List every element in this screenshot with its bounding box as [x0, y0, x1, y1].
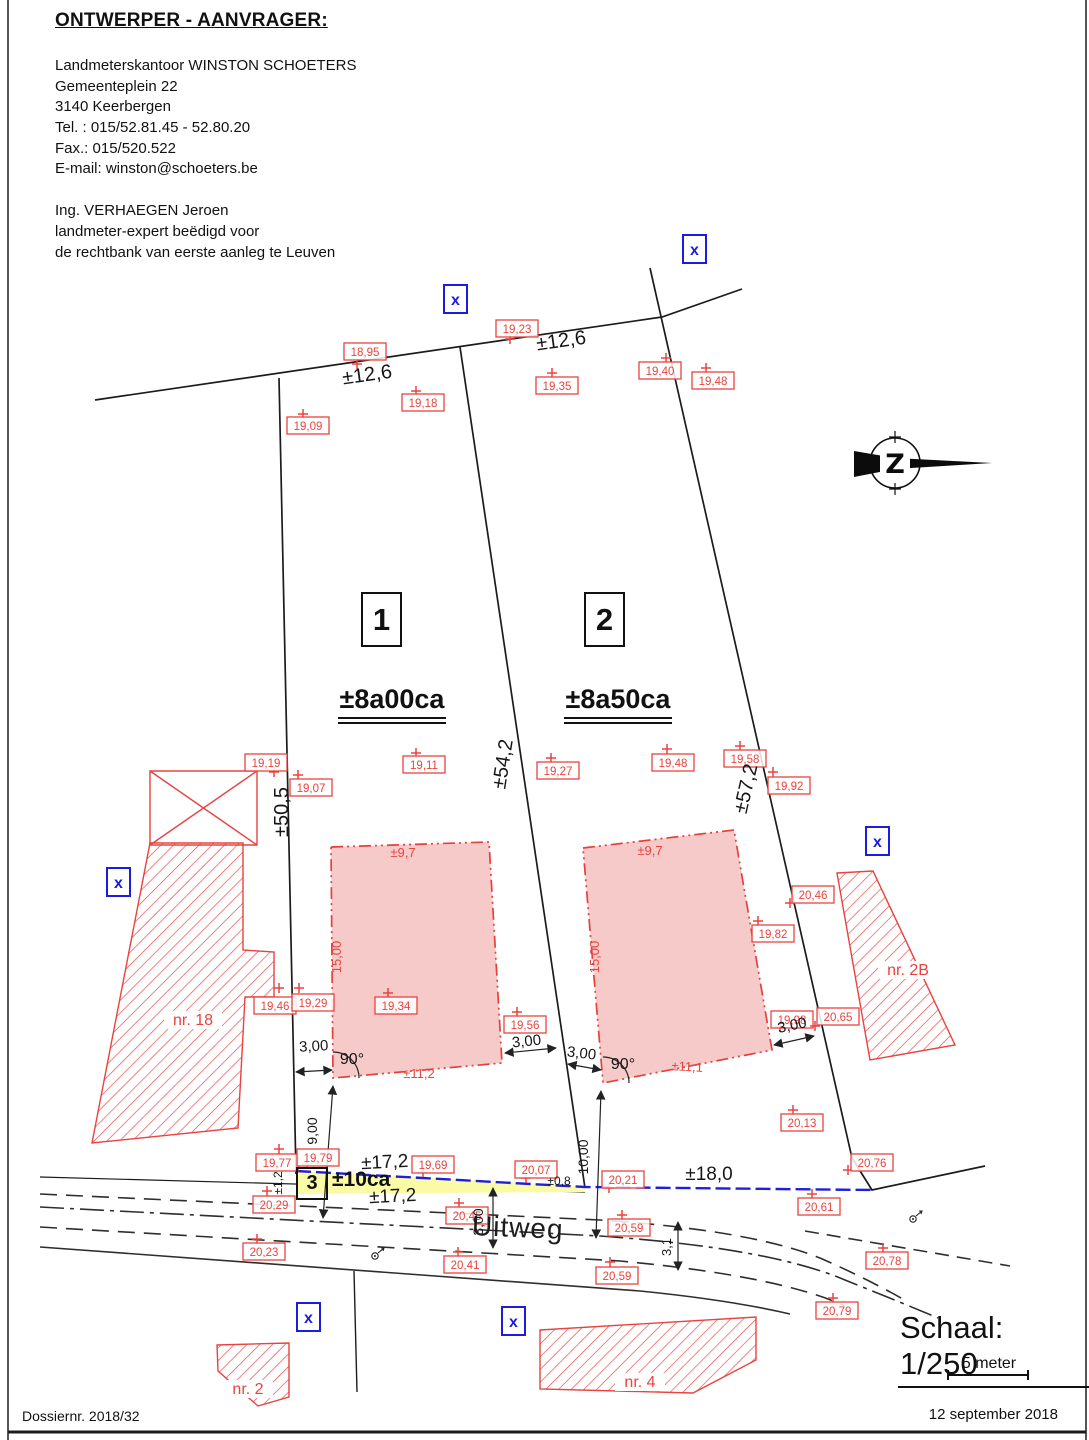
elevation-value: 19,82: [759, 929, 788, 941]
elevation-value: 20,78: [873, 1256, 902, 1268]
x-reference-mark: x: [502, 1307, 525, 1335]
elevation-value: 20,21: [609, 1175, 638, 1187]
text-line: Gemeenteplein 22: [55, 77, 356, 98]
dimension-label: 3,00: [299, 1037, 329, 1056]
front-boundary-line: [95, 289, 742, 400]
parcel-3-area: ±10ca: [332, 1168, 390, 1192]
scale-title: Schaal: 1/250: [898, 1310, 1089, 1388]
elevation-value: 20,41: [451, 1260, 480, 1272]
x-reference-mark: x: [297, 1303, 320, 1331]
text-line: de rechtbank van eerste aanleg te Leuven: [55, 243, 356, 264]
svg-text:nr. 2: nr. 2: [232, 1381, 263, 1398]
building-dimension-label: 15,00: [587, 941, 602, 974]
elevation-value: 19,27: [544, 766, 573, 778]
parcel-3-number: 3: [296, 1167, 328, 1200]
north-arrow: Z: [854, 431, 992, 495]
elevation-value: 19,11: [410, 760, 438, 772]
svg-text:nr. 4: nr. 4: [624, 1374, 655, 1391]
road-name: Uitweg: [471, 1210, 564, 1246]
dimension-label: ±0,8: [547, 1174, 571, 1188]
elevation-marker: 19,09: [287, 409, 329, 434]
elevation-marker: 19,27: [537, 753, 579, 779]
elevation-marker: 19,48: [692, 363, 734, 389]
building-nr18-gable: [150, 771, 257, 845]
dimension-label: ±12,6: [535, 327, 587, 356]
neighbor-label: nr. 4: [615, 1373, 665, 1391]
elevation-marker: 20,61: [798, 1189, 840, 1215]
x-mark-glyph: x: [114, 875, 123, 892]
x-reference-mark: x: [444, 285, 467, 313]
elevation-value: 19,18: [409, 398, 438, 410]
text-line: Fax.: 015/520.522: [55, 139, 356, 160]
text-line: E-mail: winston@schoeters.be: [55, 159, 356, 180]
elevation-value: 19,19: [252, 758, 281, 770]
elevation-value: 19,34: [382, 1001, 411, 1013]
elevation-marker: 20,41: [444, 1247, 486, 1273]
x-reference-mark: x: [683, 235, 706, 263]
elevation-marker: 19,92: [768, 767, 810, 794]
elevation-marker: 19,82: [752, 916, 794, 942]
scale-bar: [948, 1374, 1028, 1376]
elevation-value: 20,79: [823, 1306, 852, 1318]
elevation-value: 19,92: [775, 781, 804, 793]
dimension-label: 90°: [611, 1056, 635, 1073]
elevation-value: 19,09: [294, 421, 323, 433]
elevation-value: 20,29: [260, 1200, 289, 1212]
text-line: Tel. : 015/52.81.45 - 52.80.20: [55, 118, 356, 139]
elevation-marker: 19,11: [403, 748, 445, 773]
elevation-value: 19,29: [299, 998, 328, 1010]
elevation-value: 19,79: [304, 1153, 333, 1165]
svg-text:nr. 2B: nr. 2B: [887, 962, 929, 979]
text-line: 3140 Keerbergen: [55, 97, 356, 118]
elevation-value: 19,69: [419, 1160, 448, 1172]
plan-date: 12 september 2018: [860, 1406, 1058, 1423]
elevation-value: 19,46: [261, 1001, 290, 1013]
elevation-marker: 19,35: [536, 368, 578, 394]
dimension-label: 3,1: [659, 1238, 674, 1256]
elevation-value: 19,56: [511, 1020, 540, 1032]
elevation-value: 20,65: [824, 1012, 853, 1024]
parcel-2-number: 2: [584, 592, 625, 647]
elevation-marker: 19,18: [402, 386, 444, 411]
dimension-label: 10,00: [575, 1139, 591, 1174]
designer-block: ONTWERPER - AANVRAGER: Landmeterskantoor…: [55, 10, 356, 263]
elevation-value: 20,76: [858, 1158, 887, 1170]
elevation-value: 20,07: [522, 1165, 551, 1177]
dimension-label: ±18,0: [685, 1164, 732, 1185]
dimension-label: ±1,2: [271, 1171, 285, 1195]
x-mark-glyph: x: [509, 1314, 518, 1331]
dimension-label: ±50,5: [271, 787, 293, 837]
elevation-marker: 19,07: [290, 770, 332, 796]
text-line: Landmeterskantoor WINSTON SCHOETERS: [55, 56, 356, 77]
dimension-label: ±12,6: [341, 361, 393, 390]
x-mark-glyph: x: [304, 1310, 313, 1327]
elevation-value: 20,46: [799, 890, 828, 902]
x-reference-mark: x: [866, 827, 889, 855]
neighbor-label: nr. 2: [223, 1380, 273, 1398]
elevation-value: 19,35: [543, 381, 572, 393]
proposed-buildings: [331, 830, 772, 1083]
building-dimension-label: ±9,7: [637, 843, 662, 858]
elevation-marker: 19,19: [245, 754, 287, 777]
dimension-label: 3,00: [566, 1043, 597, 1063]
elevation-marker: 20,23: [243, 1234, 285, 1260]
elevation-marker: 20,21: [602, 1171, 644, 1193]
elevation-marker: 20,13: [781, 1105, 823, 1131]
elevation-value: 19,07: [297, 783, 326, 795]
building-lot2: [583, 830, 772, 1083]
parcel-1-number: 1: [361, 592, 402, 647]
elevation-marker: 19,77: [256, 1144, 298, 1171]
elevation-marker: 19,29: [292, 983, 334, 1011]
parcel-2-area: ±8a50ca: [543, 684, 693, 715]
elevation-value: 19,23: [503, 324, 532, 336]
south-boundary-line: [354, 1271, 357, 1392]
x-mark-glyph: x: [690, 242, 699, 259]
dimension-label: ±54,2: [488, 738, 518, 791]
elevation-marker: 20,76: [843, 1154, 893, 1175]
elevation-value: 20,59: [615, 1223, 644, 1235]
building-dimension-label: ±11,2: [403, 1066, 434, 1081]
elevation-value: 18,95: [351, 347, 380, 359]
x-mark-glyph: x: [873, 834, 882, 851]
elevation-value: 20,13: [788, 1118, 817, 1130]
svg-text:nr. 18: nr. 18: [173, 1012, 213, 1029]
building-dimension-label: ±9,7: [390, 845, 415, 860]
elevation-value: 19,48: [659, 758, 688, 770]
x-reference-mark: x: [107, 868, 130, 896]
elevation-marker: 19,56: [504, 1007, 546, 1033]
surveyor-info: Ing. VERHAEGEN Jeroenlandmeter-expert be…: [55, 201, 356, 263]
dossier-number: Dossiernr. 2018/32: [22, 1408, 140, 1424]
elevation-value: 19,48: [699, 376, 728, 388]
building-lot1: [331, 842, 502, 1078]
left-boundary-line: [279, 378, 296, 1174]
parcel-1-area: ±8a00ca: [317, 684, 467, 715]
dimension-label: 90°: [340, 1051, 364, 1068]
designer-title: ONTWERPER - AANVRAGER:: [55, 10, 356, 32]
x-mark-glyph: x: [451, 292, 460, 309]
elevation-value: 19,77: [263, 1158, 292, 1170]
elevation-value: 20,59: [603, 1271, 632, 1283]
elevation-marker: 19,79: [297, 1149, 339, 1169]
building-dimension-label: 15,00: [329, 941, 344, 974]
neighbor-label: nr. 18: [164, 1011, 222, 1029]
elevation-marker: 19,48: [652, 744, 694, 771]
elevation-value: 20,61: [805, 1202, 834, 1214]
elevation-marker: 20,46: [785, 886, 834, 908]
text-line: Ing. VERHAEGEN Jeroen: [55, 201, 356, 222]
elevation-marker: 20,65: [810, 1008, 859, 1031]
dimension-label: ±57,2: [730, 762, 763, 816]
office-address: Landmeterskantoor WINSTON SCHOETERSGemee…: [55, 56, 356, 180]
neighbor-label: nr. 2B: [878, 961, 938, 979]
elevation-marker: 19,69: [412, 1156, 454, 1177]
road-edge-lower: [40, 1227, 845, 1306]
dimension-label: 3,00: [511, 1032, 542, 1052]
plan-page: ONTWERPER - AANVRAGER: Landmeterskantoor…: [0, 0, 1089, 1440]
building-dimension-label: ±11,1: [671, 1058, 703, 1075]
elevation-marker: 19,40: [639, 353, 681, 379]
scale-bar-label: 5 meter: [948, 1355, 1030, 1373]
north-letter: Z: [885, 449, 905, 480]
elevation-value: 20,23: [250, 1247, 279, 1259]
dimension-label: 9,00: [304, 1117, 320, 1144]
elevation-marker: 20,59: [608, 1210, 650, 1236]
elevation-value: 19,40: [646, 366, 675, 378]
text-line: landmeter-expert beëdigd voor: [55, 222, 356, 243]
